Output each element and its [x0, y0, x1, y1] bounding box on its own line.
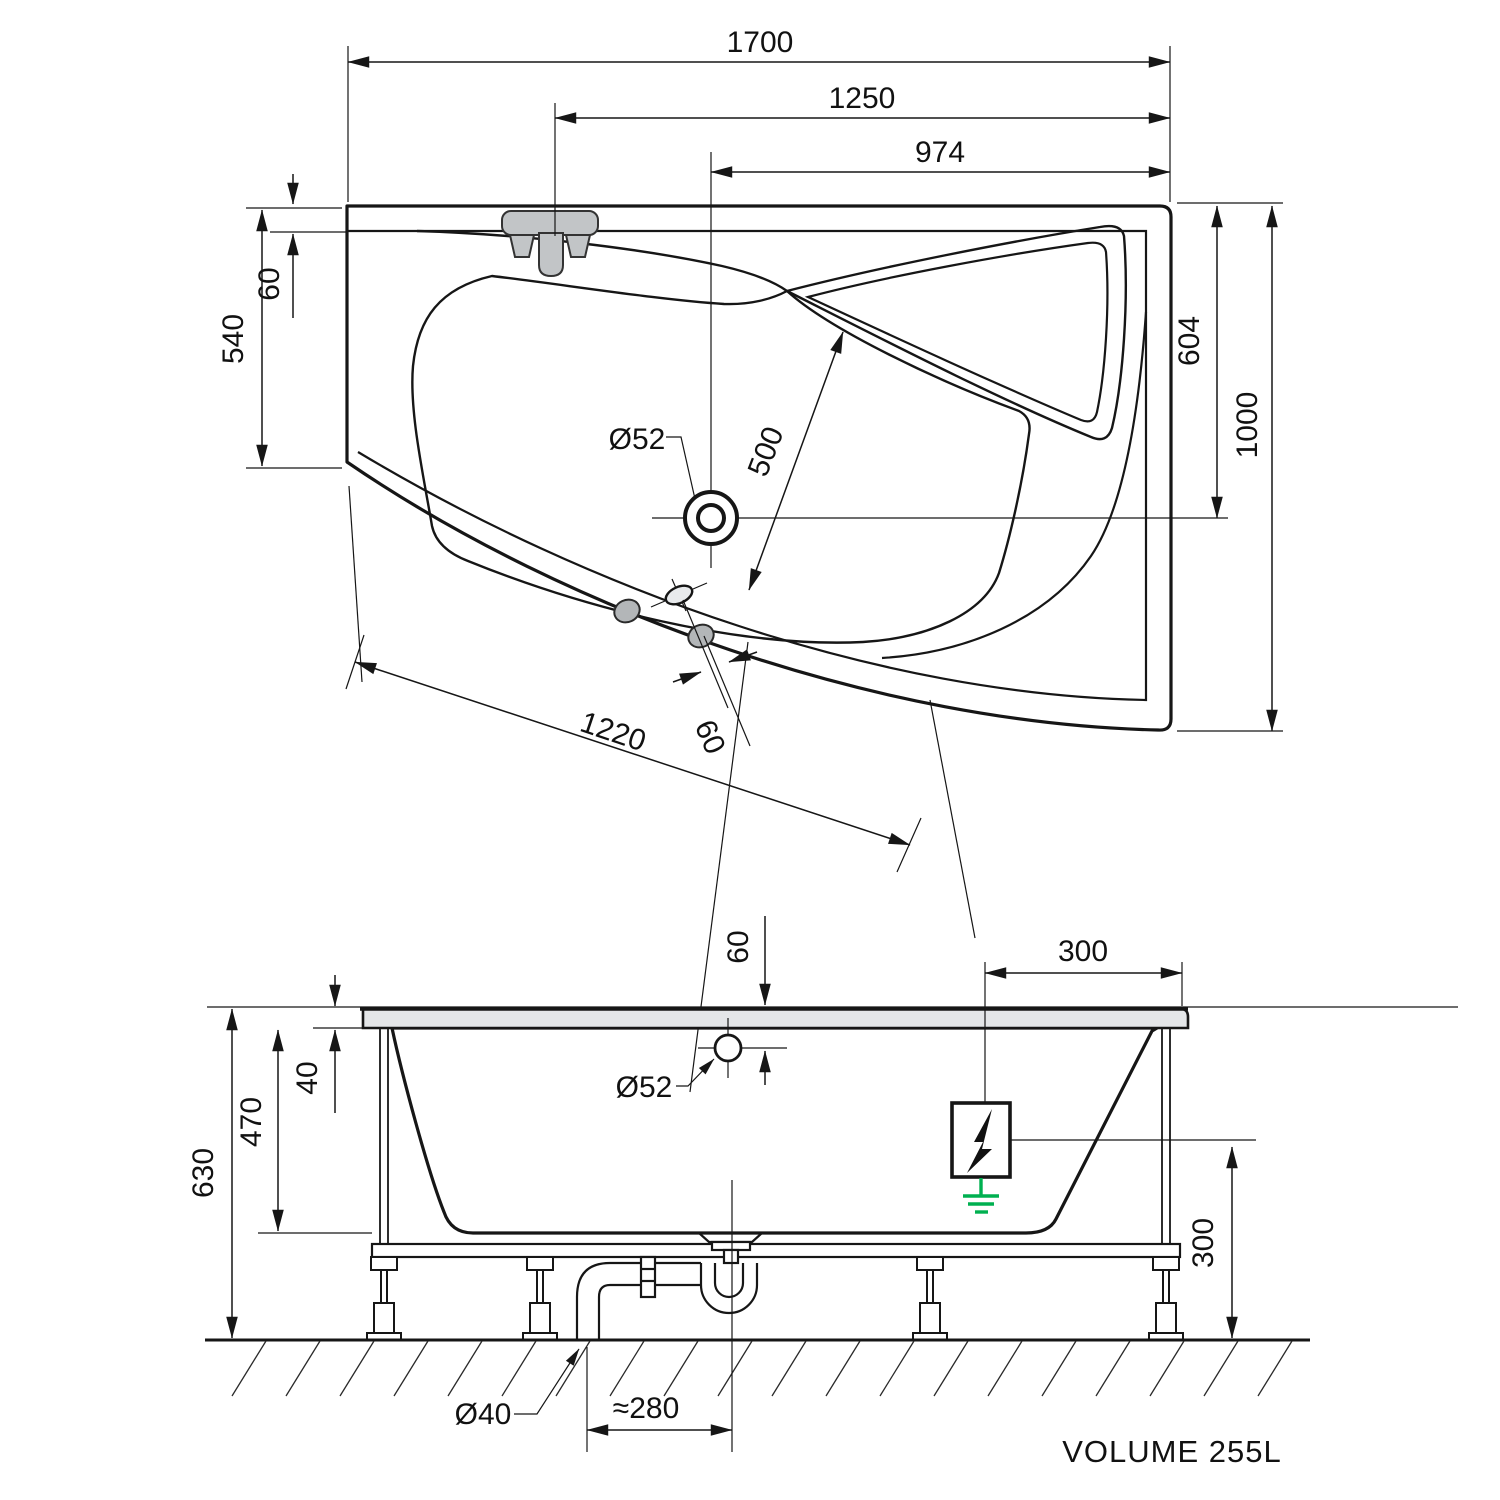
basin-contour: [412, 276, 1029, 643]
headrest-contour-outer: [787, 226, 1126, 439]
dimension-280: ≈280: [587, 1180, 732, 1452]
drain-diameter-text: Ø52: [609, 423, 666, 456]
earth-ground-icon: [963, 1178, 999, 1212]
rim-slab-side: [363, 1009, 1188, 1028]
dimension-630: 630: [187, 1009, 232, 1338]
frame-leg: [367, 1257, 401, 1340]
dim-label-280: ≈280: [613, 1392, 680, 1425]
dimension-40: 40: [291, 975, 335, 1113]
tub-body-side: [392, 1028, 1157, 1233]
dimension-1000: 1000: [1177, 206, 1283, 731]
dim-label-300-top: 300: [1058, 935, 1108, 968]
dimension-1250: 1250: [555, 82, 1170, 236]
rim-sweep-curve: [882, 312, 1146, 658]
dim-label-630: 630: [187, 1148, 220, 1198]
frame-leg: [1149, 1257, 1183, 1340]
dimension-300-right: 300: [1187, 1147, 1232, 1338]
equipotential-bonding-icon: [952, 962, 1256, 1212]
bathtub-technical-drawing: 1700 1250 974 540 60 604: [0, 0, 1500, 1500]
volume-label: VOLUME 255L: [1062, 1434, 1282, 1469]
waste-pipe-diameter-text: Ø40: [455, 1398, 512, 1431]
jet-icon: [685, 621, 718, 652]
dim-label-40: 40: [291, 1061, 324, 1094]
dimension-300-top: 300: [985, 935, 1182, 1006]
dim-label-1220: 1220: [576, 706, 650, 758]
dimension-60-rim: 60: [253, 174, 347, 318]
dimension-470: 470: [235, 1028, 373, 1233]
dim-label-540: 540: [217, 314, 250, 364]
dimension-604: 604: [1173, 203, 1283, 518]
faucet-icon: [502, 211, 598, 276]
frame-leg: [523, 1257, 557, 1340]
dimension-540: 540: [217, 208, 342, 468]
dim-label-974: 974: [915, 136, 965, 169]
dim-label-300-right: 300: [1187, 1218, 1220, 1268]
dimension-974: 974: [711, 136, 1170, 172]
floor-line: [205, 1340, 1310, 1396]
jet-icon: [611, 596, 644, 627]
label-drain-diameter-plan: Ø52: [609, 423, 695, 499]
label-overflow-diameter-side: Ø52: [616, 1059, 714, 1104]
dim-label-1000: 1000: [1231, 392, 1264, 459]
dim-label-60-jets: 60: [688, 715, 732, 759]
frame-posts: [380, 1028, 1170, 1244]
dim-label-1700: 1700: [727, 26, 794, 59]
dimension-1220-diagonal: 1220: [346, 486, 975, 938]
technical-drawing-page: 1700 1250 974 540 60 604: [0, 0, 1500, 1500]
side-view: 630 470 40 60 Ø52 300 300: [187, 916, 1458, 1452]
dim-label-604: 604: [1173, 316, 1206, 366]
overflow-diameter-text: Ø52: [616, 1071, 673, 1104]
dimension-500-diagonal: 500: [690, 332, 843, 1092]
dim-label-470: 470: [235, 1097, 268, 1147]
dim-label-1250: 1250: [829, 82, 896, 115]
floor-hatching: [232, 1341, 1292, 1396]
dim-label-60-overflow: 60: [722, 930, 755, 963]
dim-label-500: 500: [742, 422, 791, 481]
support-frame: [367, 1244, 1183, 1340]
headrest-contour-inner: [808, 243, 1107, 422]
dimension-60-jets: 60: [673, 600, 757, 759]
dim-label-60: 60: [253, 267, 286, 300]
dimension-1700: 1700: [348, 26, 1170, 202]
frame-leg: [913, 1257, 947, 1340]
